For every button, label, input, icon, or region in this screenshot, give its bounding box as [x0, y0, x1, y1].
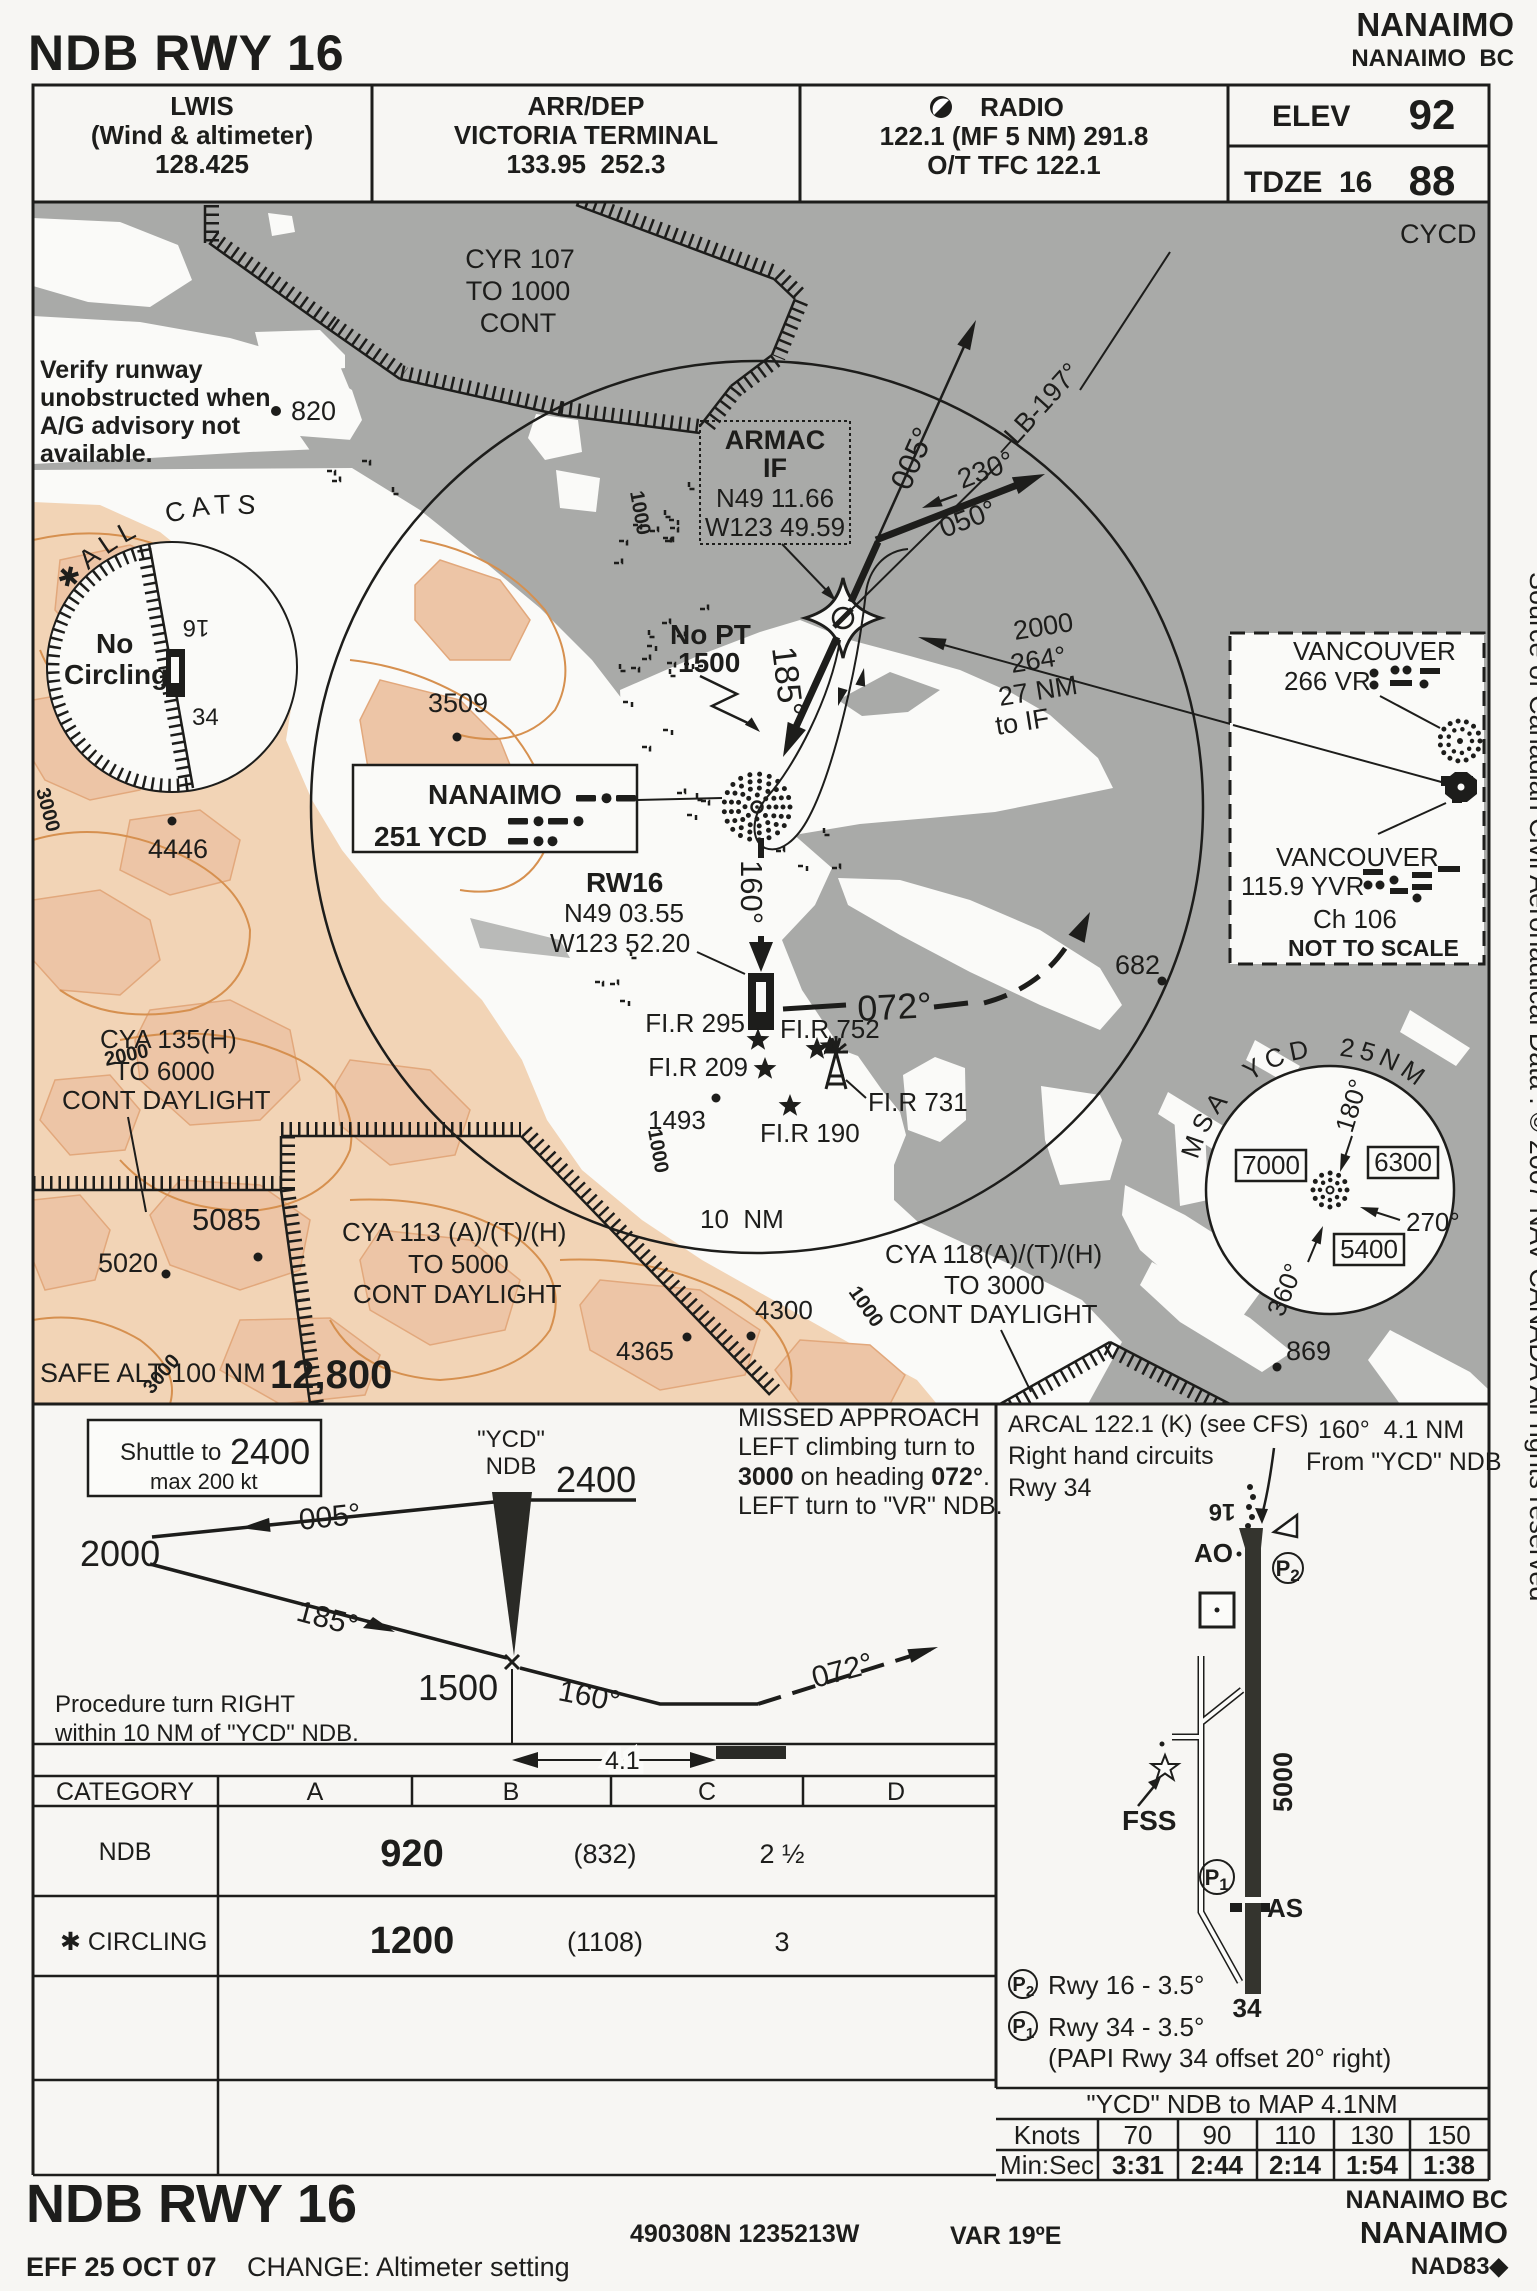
- svg-text:Right hand circuits: Right hand circuits: [1008, 1442, 1214, 1470]
- svg-text:122.1 (MF 5 NM) 291.8: 122.1 (MF 5 NM) 291.8: [880, 121, 1149, 151]
- svg-text:P: P: [1276, 1556, 1291, 1581]
- svg-text:16: 16: [1209, 1498, 1236, 1525]
- svg-text:EFF 25 OCT 07: EFF 25 OCT 07: [26, 2252, 217, 2282]
- svg-text:1: 1: [1026, 2025, 1034, 2042]
- svg-text:within 10 NM of "YCD" NDB.: within 10 NM of "YCD" NDB.: [54, 1720, 359, 1747]
- svg-text:34: 34: [192, 704, 219, 731]
- svg-text:unobstructed when: unobstructed when: [40, 384, 271, 412]
- svg-text:005°: 005°: [297, 1498, 362, 1537]
- svg-text:No: No: [96, 628, 133, 659]
- svg-text:160°: 160°: [734, 860, 769, 924]
- svg-text:RADIO: RADIO: [980, 92, 1064, 122]
- svg-text:NOT TO SCALE: NOT TO SCALE: [1288, 935, 1459, 961]
- svg-text:133.95 252.3: 133.95 252.3: [506, 149, 665, 179]
- svg-text:3509: 3509: [428, 688, 488, 718]
- svg-text:From "YCD" NDB: From "YCD" NDB: [1306, 1448, 1502, 1476]
- svg-text:115.9 YVR: 115.9 YVR: [1241, 871, 1364, 901]
- svg-text:34: 34: [1233, 1993, 1262, 2023]
- svg-text:TO 5000: TO 5000: [408, 1249, 509, 1279]
- svg-text:1200: 1200: [370, 1920, 455, 1962]
- svg-text:Ch 106: Ch 106: [1313, 904, 1397, 934]
- svg-text:CONT DAYLIGHT: CONT DAYLIGHT: [889, 1299, 1098, 1329]
- svg-text:130: 130: [1350, 2120, 1393, 2150]
- svg-text:(PAPI Rwy 34 offset 20° right): (PAPI Rwy 34 offset 20° right): [1048, 2043, 1391, 2073]
- svg-text:CONT DAYLIGHT: CONT DAYLIGHT: [353, 1279, 562, 1309]
- svg-text:1500: 1500: [678, 647, 740, 678]
- svg-text:AO: AO: [1194, 1538, 1233, 1568]
- svg-text:P: P: [1012, 2016, 1025, 2038]
- svg-text:2400: 2400: [556, 1459, 636, 1500]
- svg-text:✱ CIRCLING: ✱ CIRCLING: [60, 1928, 207, 1956]
- svg-text:072°: 072°: [856, 984, 933, 1029]
- svg-text:AS: AS: [1267, 1893, 1303, 1923]
- svg-text:10 NM: 10 NM: [700, 1204, 784, 1234]
- svg-text:160° 4.1 NM: 160° 4.1 NM: [1318, 1416, 1464, 1444]
- svg-text:W123 52.20: W123 52.20: [550, 928, 690, 958]
- svg-text:1: 1: [1219, 1875, 1228, 1894]
- svg-text:Circling: Circling: [64, 659, 168, 690]
- svg-text:FI.R 209: FI.R 209: [648, 1052, 748, 1082]
- svg-text:Rwy 34: Rwy 34: [1008, 1474, 1091, 1502]
- svg-text:Rwy 34 - 3.5°: Rwy 34 - 3.5°: [1048, 2012, 1204, 2042]
- svg-text:4.1: 4.1: [598, 1747, 647, 1775]
- svg-text:2 ½: 2 ½: [759, 1839, 804, 1869]
- svg-text:Procedure turn RIGHT: Procedure turn RIGHT: [55, 1691, 295, 1718]
- svg-text:NANAIMO: NANAIMO: [428, 779, 562, 810]
- svg-text:A: A: [307, 1778, 324, 1806]
- svg-text:P: P: [1205, 1865, 1220, 1890]
- svg-text:FI.R 731: FI.R 731: [868, 1087, 968, 1117]
- svg-text:LEFT turn to "VR" NDB.: LEFT turn to "VR" NDB.: [738, 1492, 1003, 1520]
- svg-text:3000 on heading 072°.: 3000 on heading 072°.: [738, 1463, 990, 1491]
- svg-text:CYA 118(A)/(T)/(H): CYA 118(A)/(T)/(H): [885, 1239, 1102, 1269]
- svg-text:869: 869: [1286, 1336, 1331, 1366]
- svg-text:CYA 135(H): CYA 135(H): [100, 1024, 237, 1054]
- svg-text:Knots: Knots: [1014, 2120, 1081, 2150]
- svg-text:2400: 2400: [230, 1431, 310, 1472]
- svg-text:2: 2: [1290, 1566, 1299, 1585]
- svg-text:NANAIMO BC: NANAIMO BC: [1346, 2186, 1509, 2214]
- svg-text:1493: 1493: [648, 1105, 706, 1135]
- svg-text:(Wind & altimeter): (Wind & altimeter): [91, 120, 313, 150]
- svg-text:LWIS: LWIS: [170, 91, 234, 121]
- svg-text:490308N 1235213W: 490308N 1235213W: [630, 2220, 860, 2248]
- svg-text:NAD83◆: NAD83◆: [1411, 2253, 1509, 2280]
- svg-text:TO 1000: TO 1000: [466, 276, 571, 306]
- svg-text:"YCD": "YCD": [477, 1426, 545, 1453]
- svg-text:Rwy 16 - 3.5°: Rwy 16 - 3.5°: [1048, 1970, 1204, 2000]
- svg-text:TDZE 16: TDZE 16: [1244, 166, 1372, 199]
- svg-text:270°: 270°: [1406, 1207, 1460, 1237]
- svg-text:1:38: 1:38: [1423, 2150, 1475, 2180]
- svg-text:FI.R 190: FI.R 190: [760, 1118, 860, 1148]
- svg-text:ARMAC: ARMAC: [725, 425, 826, 455]
- svg-text:N49 11.66: N49 11.66: [716, 483, 834, 513]
- svg-text:NANAIMO BC: NANAIMO BC: [1351, 45, 1514, 72]
- svg-text:2000: 2000: [80, 1533, 160, 1574]
- svg-text:available.: available.: [40, 440, 153, 468]
- svg-text:TO 3000: TO 3000: [944, 1270, 1045, 1300]
- svg-text:"YCD" NDB to MAP 4.1NM: "YCD" NDB to MAP 4.1NM: [1086, 2089, 1397, 2119]
- svg-text:FSS: FSS: [1122, 1805, 1176, 1836]
- svg-text:5020: 5020: [98, 1248, 158, 1278]
- svg-text:4365: 4365: [616, 1336, 674, 1366]
- svg-text:ARCAL 122.1 (K) (see CFS): ARCAL 122.1 (K) (see CFS): [1008, 1411, 1309, 1438]
- svg-text:SAFE ALT 100 NM: SAFE ALT 100 NM: [40, 1358, 266, 1388]
- svg-text:2: 2: [1026, 1983, 1034, 2000]
- svg-text:682: 682: [1115, 950, 1160, 980]
- svg-text:NDB RWY 16: NDB RWY 16: [26, 2174, 357, 2234]
- svg-text:CYCD: CYCD: [1400, 219, 1477, 249]
- svg-text:MISSED APPROACH: MISSED APPROACH: [738, 1404, 980, 1432]
- svg-text:VICTORIA TERMINAL: VICTORIA TERMINAL: [454, 120, 718, 150]
- svg-text:3:31: 3:31: [1112, 2150, 1164, 2180]
- svg-text:251 YCD: 251 YCD: [374, 821, 487, 852]
- svg-text:Min:Sec: Min:Sec: [1000, 2150, 1094, 2180]
- svg-text:110: 110: [1274, 2120, 1315, 2150]
- svg-text:CHANGE: Altimeter setting: CHANGE: Altimeter setting: [247, 2252, 570, 2282]
- svg-text:FI.R 295: FI.R 295: [645, 1008, 745, 1038]
- svg-text:4300: 4300: [755, 1295, 813, 1325]
- svg-text:5000: 5000: [1268, 1752, 1298, 1812]
- svg-text:CONT DAYLIGHT: CONT DAYLIGHT: [62, 1085, 271, 1115]
- svg-text:NANAIMO: NANAIMO: [1356, 6, 1514, 43]
- svg-text:CONT: CONT: [480, 308, 557, 338]
- svg-text:072°: 072°: [808, 1647, 876, 1695]
- svg-text:185°: 185°: [293, 1595, 361, 1643]
- svg-text:5085: 5085: [192, 1202, 261, 1237]
- svg-text:1500: 1500: [418, 1667, 498, 1708]
- svg-text:NDB: NDB: [99, 1838, 152, 1866]
- svg-text:70: 70: [1124, 2120, 1153, 2150]
- svg-text:RW16: RW16: [586, 867, 663, 898]
- svg-text:LEFT climbing turn to: LEFT climbing turn to: [738, 1433, 975, 1461]
- svg-text:P: P: [1012, 1974, 1025, 1996]
- svg-text:1:54: 1:54: [1346, 2150, 1399, 2180]
- svg-text:ELEV: ELEV: [1272, 100, 1350, 133]
- svg-text:A/G advisory not: A/G advisory not: [40, 412, 241, 440]
- svg-text:4446: 4446: [148, 834, 208, 864]
- svg-text:CATEGORY: CATEGORY: [56, 1778, 194, 1806]
- svg-text:3: 3: [774, 1927, 789, 1957]
- svg-text:VANCOUVER: VANCOUVER: [1293, 636, 1456, 666]
- svg-text:IF: IF: [763, 453, 787, 483]
- svg-text:NDB: NDB: [486, 1453, 537, 1480]
- svg-text:128.425: 128.425: [155, 149, 249, 179]
- svg-text:CYR 107: CYR 107: [465, 244, 575, 274]
- svg-text:NANAIMO: NANAIMO: [1360, 2215, 1508, 2250]
- svg-text:820: 820: [291, 396, 336, 426]
- svg-text:NDB RWY 16: NDB RWY 16: [28, 25, 345, 81]
- svg-text:920: 920: [380, 1833, 443, 1875]
- svg-text:(832): (832): [573, 1839, 636, 1869]
- svg-text:C: C: [698, 1778, 716, 1806]
- svg-text:VANCOUVER: VANCOUVER: [1276, 842, 1439, 872]
- svg-text:2:14: 2:14: [1269, 2150, 1322, 2180]
- svg-text:No PT: No PT: [670, 619, 751, 650]
- svg-text:Verify runway: Verify runway: [40, 356, 203, 384]
- svg-text:7000: 7000: [1242, 1150, 1300, 1180]
- svg-text:D: D: [887, 1778, 905, 1806]
- svg-text:B: B: [503, 1778, 520, 1806]
- svg-text:12,800: 12,800: [270, 1353, 392, 1397]
- svg-text:160°: 160°: [556, 1674, 623, 1718]
- svg-text:ARR/DEP: ARR/DEP: [527, 91, 644, 121]
- svg-text:CYA 113 (A)/(T)/(H): CYA 113 (A)/(T)/(H): [342, 1217, 566, 1247]
- svg-text:266 VR: 266 VR: [1284, 666, 1371, 696]
- svg-text:TO 6000: TO 6000: [114, 1056, 215, 1086]
- svg-text:150: 150: [1427, 2120, 1470, 2150]
- svg-text:5400: 5400: [1340, 1234, 1398, 1264]
- svg-text:VAR 19ºE: VAR 19ºE: [950, 2222, 1062, 2250]
- svg-text:2:44: 2:44: [1191, 2150, 1244, 2180]
- svg-text:88: 88: [1409, 157, 1456, 204]
- svg-text:N49 03.55: N49 03.55: [564, 898, 684, 928]
- svg-text:Shuttle to: Shuttle to: [120, 1439, 221, 1466]
- svg-text:92: 92: [1409, 91, 1456, 138]
- svg-text:90: 90: [1203, 2120, 1232, 2150]
- svg-text:(1108): (1108): [567, 1927, 643, 1957]
- svg-text:O/T TFC 122.1: O/T TFC 122.1: [927, 150, 1100, 180]
- svg-text:Source of Canadian Civil Aeron: Source of Canadian Civil Aeronautical Da…: [1524, 572, 1537, 1601]
- svg-text:16: 16: [183, 614, 210, 641]
- svg-text:W123 49.59: W123 49.59: [705, 512, 845, 542]
- svg-text:6300: 6300: [1374, 1147, 1432, 1177]
- svg-text:max 200 kt: max 200 kt: [150, 1469, 258, 1494]
